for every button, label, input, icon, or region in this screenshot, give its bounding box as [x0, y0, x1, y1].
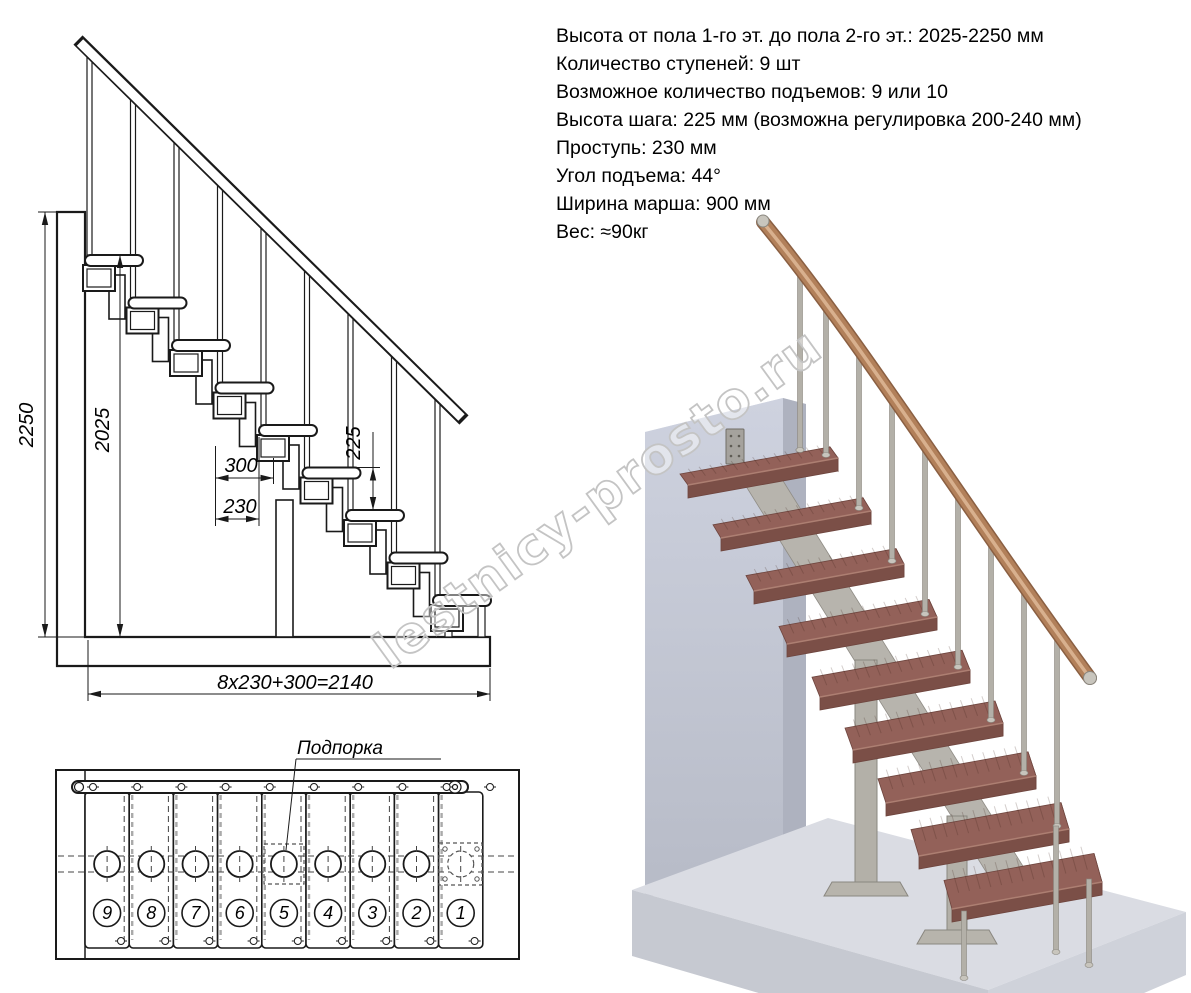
- plan-step-number: 7: [190, 903, 201, 923]
- spec-line: Высота от пола 1-го эт. до пола 2-го эт.…: [556, 22, 1186, 50]
- dim-step-rise-label: 225: [343, 425, 365, 460]
- plan-step-number: 9: [102, 903, 112, 923]
- plan-view-drawing: 987654321: [56, 759, 519, 959]
- plan-step-number: 5: [279, 903, 290, 923]
- spec-line: Высота шага: 225 мм (возможна регулировк…: [556, 106, 1186, 134]
- cad-drawings: 2250 2025 300 230 225 8x230+300=2140 987…: [0, 0, 545, 993]
- staircase-drawing-page: 2250 2025 300 230 225 8x230+300=2140 987…: [0, 0, 1191, 993]
- spec-line: Возможное количество подъемов: 9 или 10: [556, 78, 1186, 106]
- dim-total-height-label: 2250: [16, 403, 38, 449]
- dim-step-run-label: 230: [222, 496, 256, 518]
- plan-step-number: 8: [146, 903, 156, 923]
- dim-total-run-label: 8x230+300=2140: [217, 672, 373, 694]
- spec-line: Проступь: 230 мм: [556, 134, 1186, 162]
- side-elevation-drawing: [57, 40, 491, 666]
- plan-step-number: 2: [410, 903, 421, 923]
- staircase-3d-render: [600, 200, 1191, 993]
- render-3d-geometry: [632, 215, 1186, 993]
- plan-step-number: 4: [323, 903, 333, 923]
- spec-line: Количество ступеней: 9 шт: [556, 50, 1186, 78]
- dim-tread-depth-label: 300: [224, 455, 257, 477]
- spec-line: Угол подъема: 44°: [556, 162, 1186, 190]
- support-label: Подпорка: [297, 738, 383, 759]
- plan-step-number: 6: [235, 903, 246, 923]
- plan-step-number: 1: [456, 903, 466, 923]
- dim-steps-height-label: 2025: [92, 407, 114, 453]
- plan-step-number: 3: [367, 903, 377, 923]
